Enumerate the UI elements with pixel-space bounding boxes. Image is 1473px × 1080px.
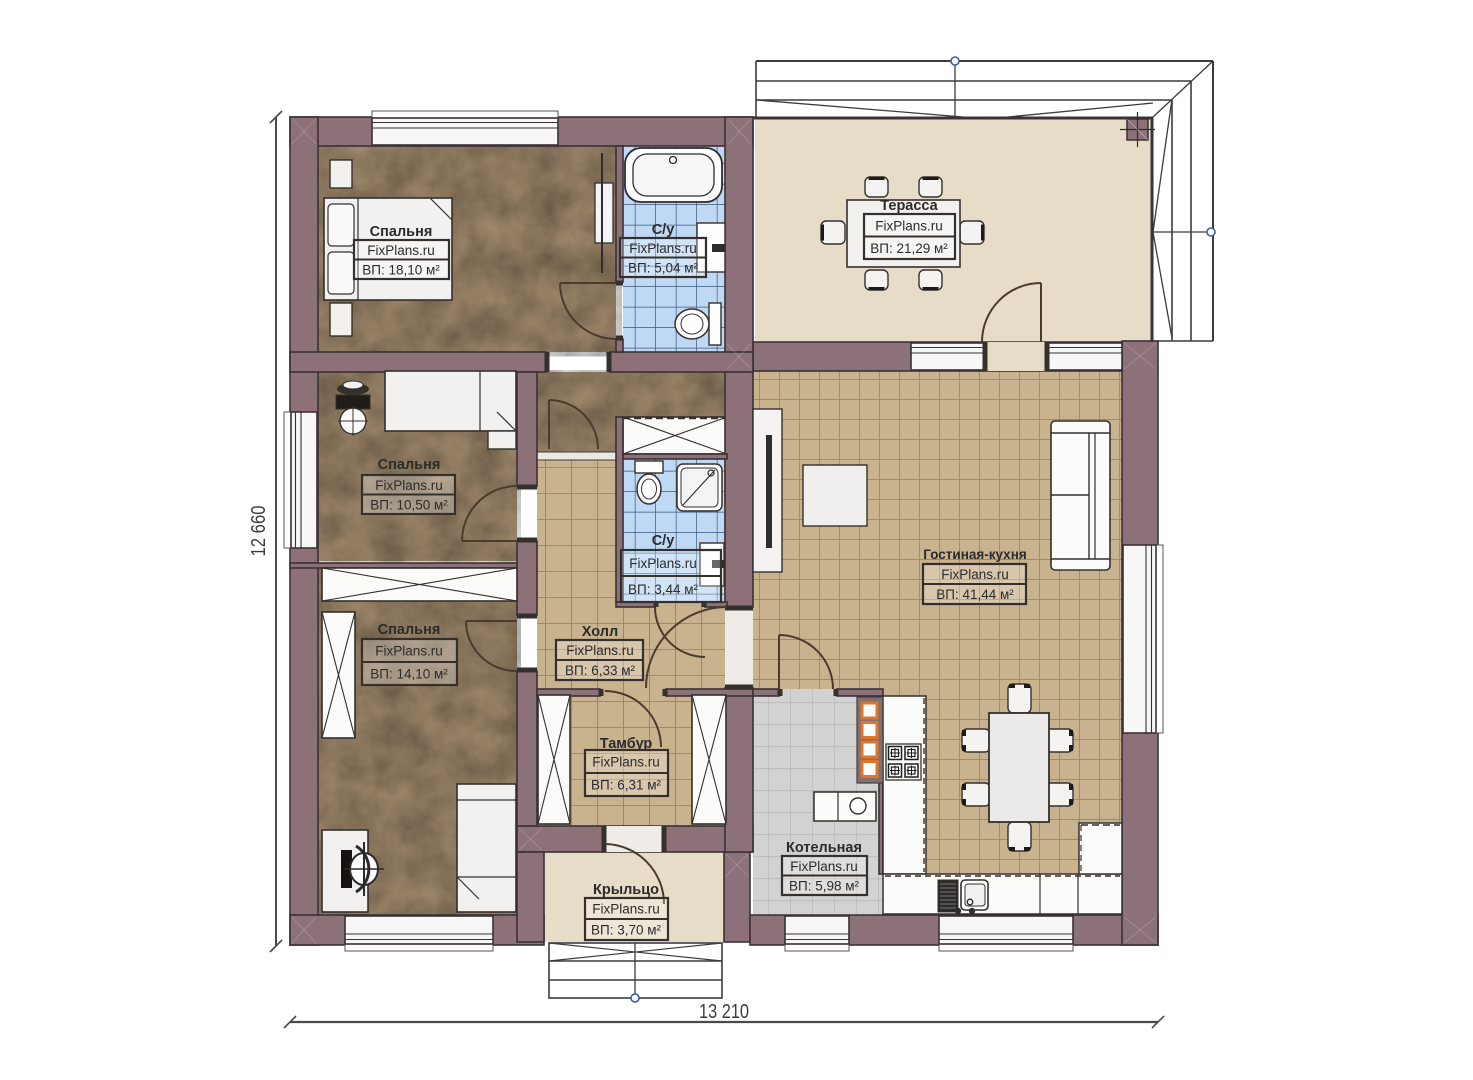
svg-text:FixPlans.ru: FixPlans.ru	[367, 243, 435, 258]
svg-text:FixPlans.ru: FixPlans.ru	[375, 478, 443, 493]
svg-text:FixPlans.ru: FixPlans.ru	[629, 241, 697, 256]
svg-text:ВП: 10,50 м²: ВП: 10,50 м²	[370, 497, 448, 512]
svg-text:12 660: 12 660	[248, 506, 270, 557]
svg-text:ВП: 14,10 м²: ВП: 14,10 м²	[370, 667, 448, 682]
svg-text:Спальня: Спальня	[378, 622, 441, 638]
svg-text:ВП: 5,04 м²: ВП: 5,04 м²	[628, 260, 699, 275]
svg-text:FixPlans.ru: FixPlans.ru	[790, 859, 858, 874]
svg-text:ВП: 6,31 м²: ВП: 6,31 м²	[591, 778, 662, 793]
svg-text:13 210: 13 210	[699, 1001, 749, 1023]
svg-text:FixPlans.ru: FixPlans.ru	[592, 755, 660, 770]
svg-text:FixPlans.ru: FixPlans.ru	[566, 643, 634, 658]
svg-text:ВП: 3,70 м²: ВП: 3,70 м²	[591, 923, 662, 938]
svg-text:Крыльцо: Крыльцо	[593, 882, 659, 898]
svg-text:Гостиная-кухня: Гостиная-кухня	[923, 547, 1026, 562]
svg-text:ВП: 21,29 м²: ВП: 21,29 м²	[870, 241, 948, 256]
svg-text:ВП: 18,10 м²: ВП: 18,10 м²	[362, 262, 440, 277]
svg-text:Терасса: Терасса	[880, 198, 938, 214]
svg-text:ВП: 6,33 м²: ВП: 6,33 м²	[565, 663, 636, 678]
svg-text:FixPlans.ru: FixPlans.ru	[629, 556, 697, 571]
svg-text:Спальня: Спальня	[370, 224, 433, 240]
svg-text:FixPlans.ru: FixPlans.ru	[941, 567, 1009, 582]
svg-text:ВП: 3,44 м²: ВП: 3,44 м²	[628, 582, 699, 597]
svg-text:ВП: 5,98 м²: ВП: 5,98 м²	[789, 878, 860, 893]
svg-text:С/у: С/у	[652, 222, 675, 238]
svg-text:FixPlans.ru: FixPlans.ru	[375, 644, 443, 659]
svg-text:FixPlans.ru: FixPlans.ru	[875, 218, 943, 233]
svg-text:ВП: 41,44 м²: ВП: 41,44 м²	[936, 587, 1014, 602]
svg-text:Котельная: Котельная	[786, 840, 862, 856]
svg-text:Спальня: Спальня	[378, 457, 441, 473]
svg-text:FixPlans.ru: FixPlans.ru	[592, 902, 660, 917]
svg-text:С/у: С/у	[652, 533, 675, 549]
svg-text:Холл: Холл	[582, 624, 618, 640]
